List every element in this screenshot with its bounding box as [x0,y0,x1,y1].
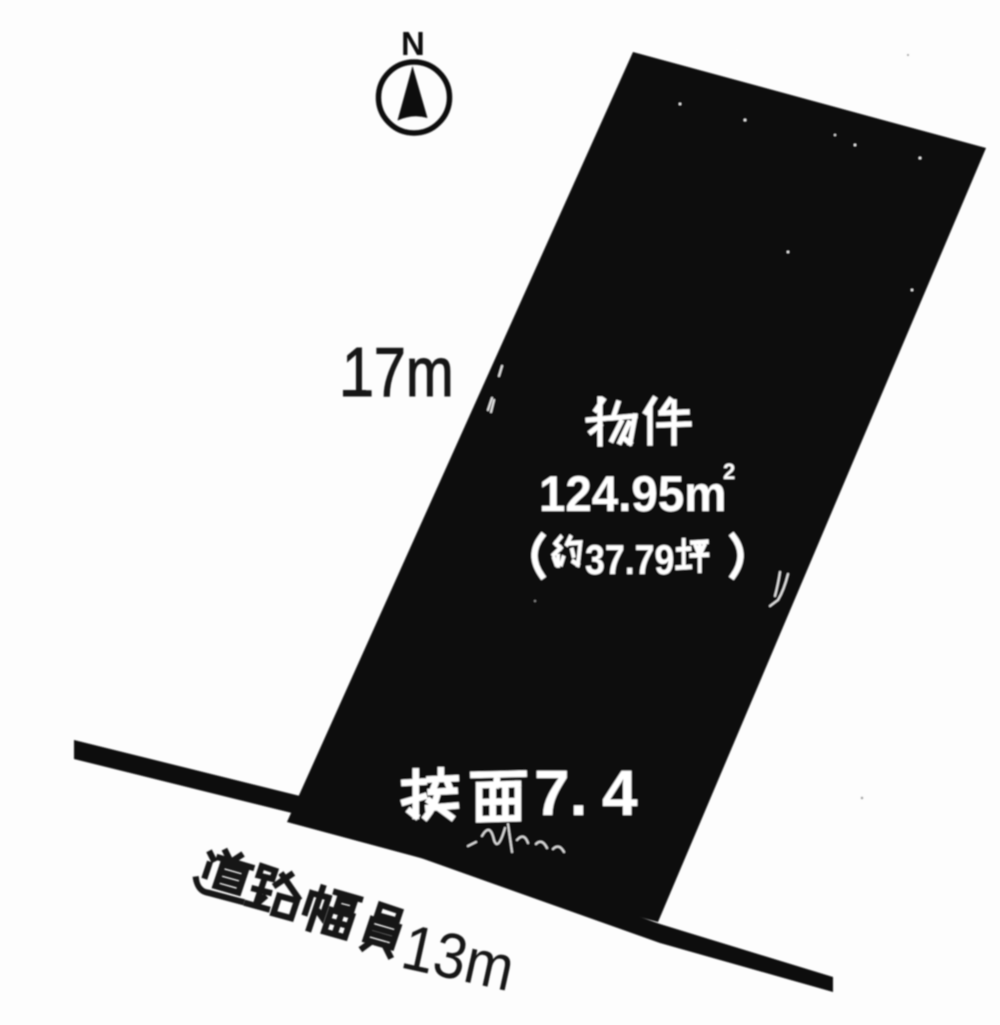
svg-text:4: 4 [602,757,638,829]
svg-text:37.79: 37.79 [585,537,674,583]
svg-text:7.: 7. [534,757,587,829]
svg-text:2: 2 [723,459,735,484]
svg-text:124.95m: 124.95m [539,467,726,522]
svg-text:17m: 17m [342,333,454,412]
svg-text:N: N [401,25,425,62]
